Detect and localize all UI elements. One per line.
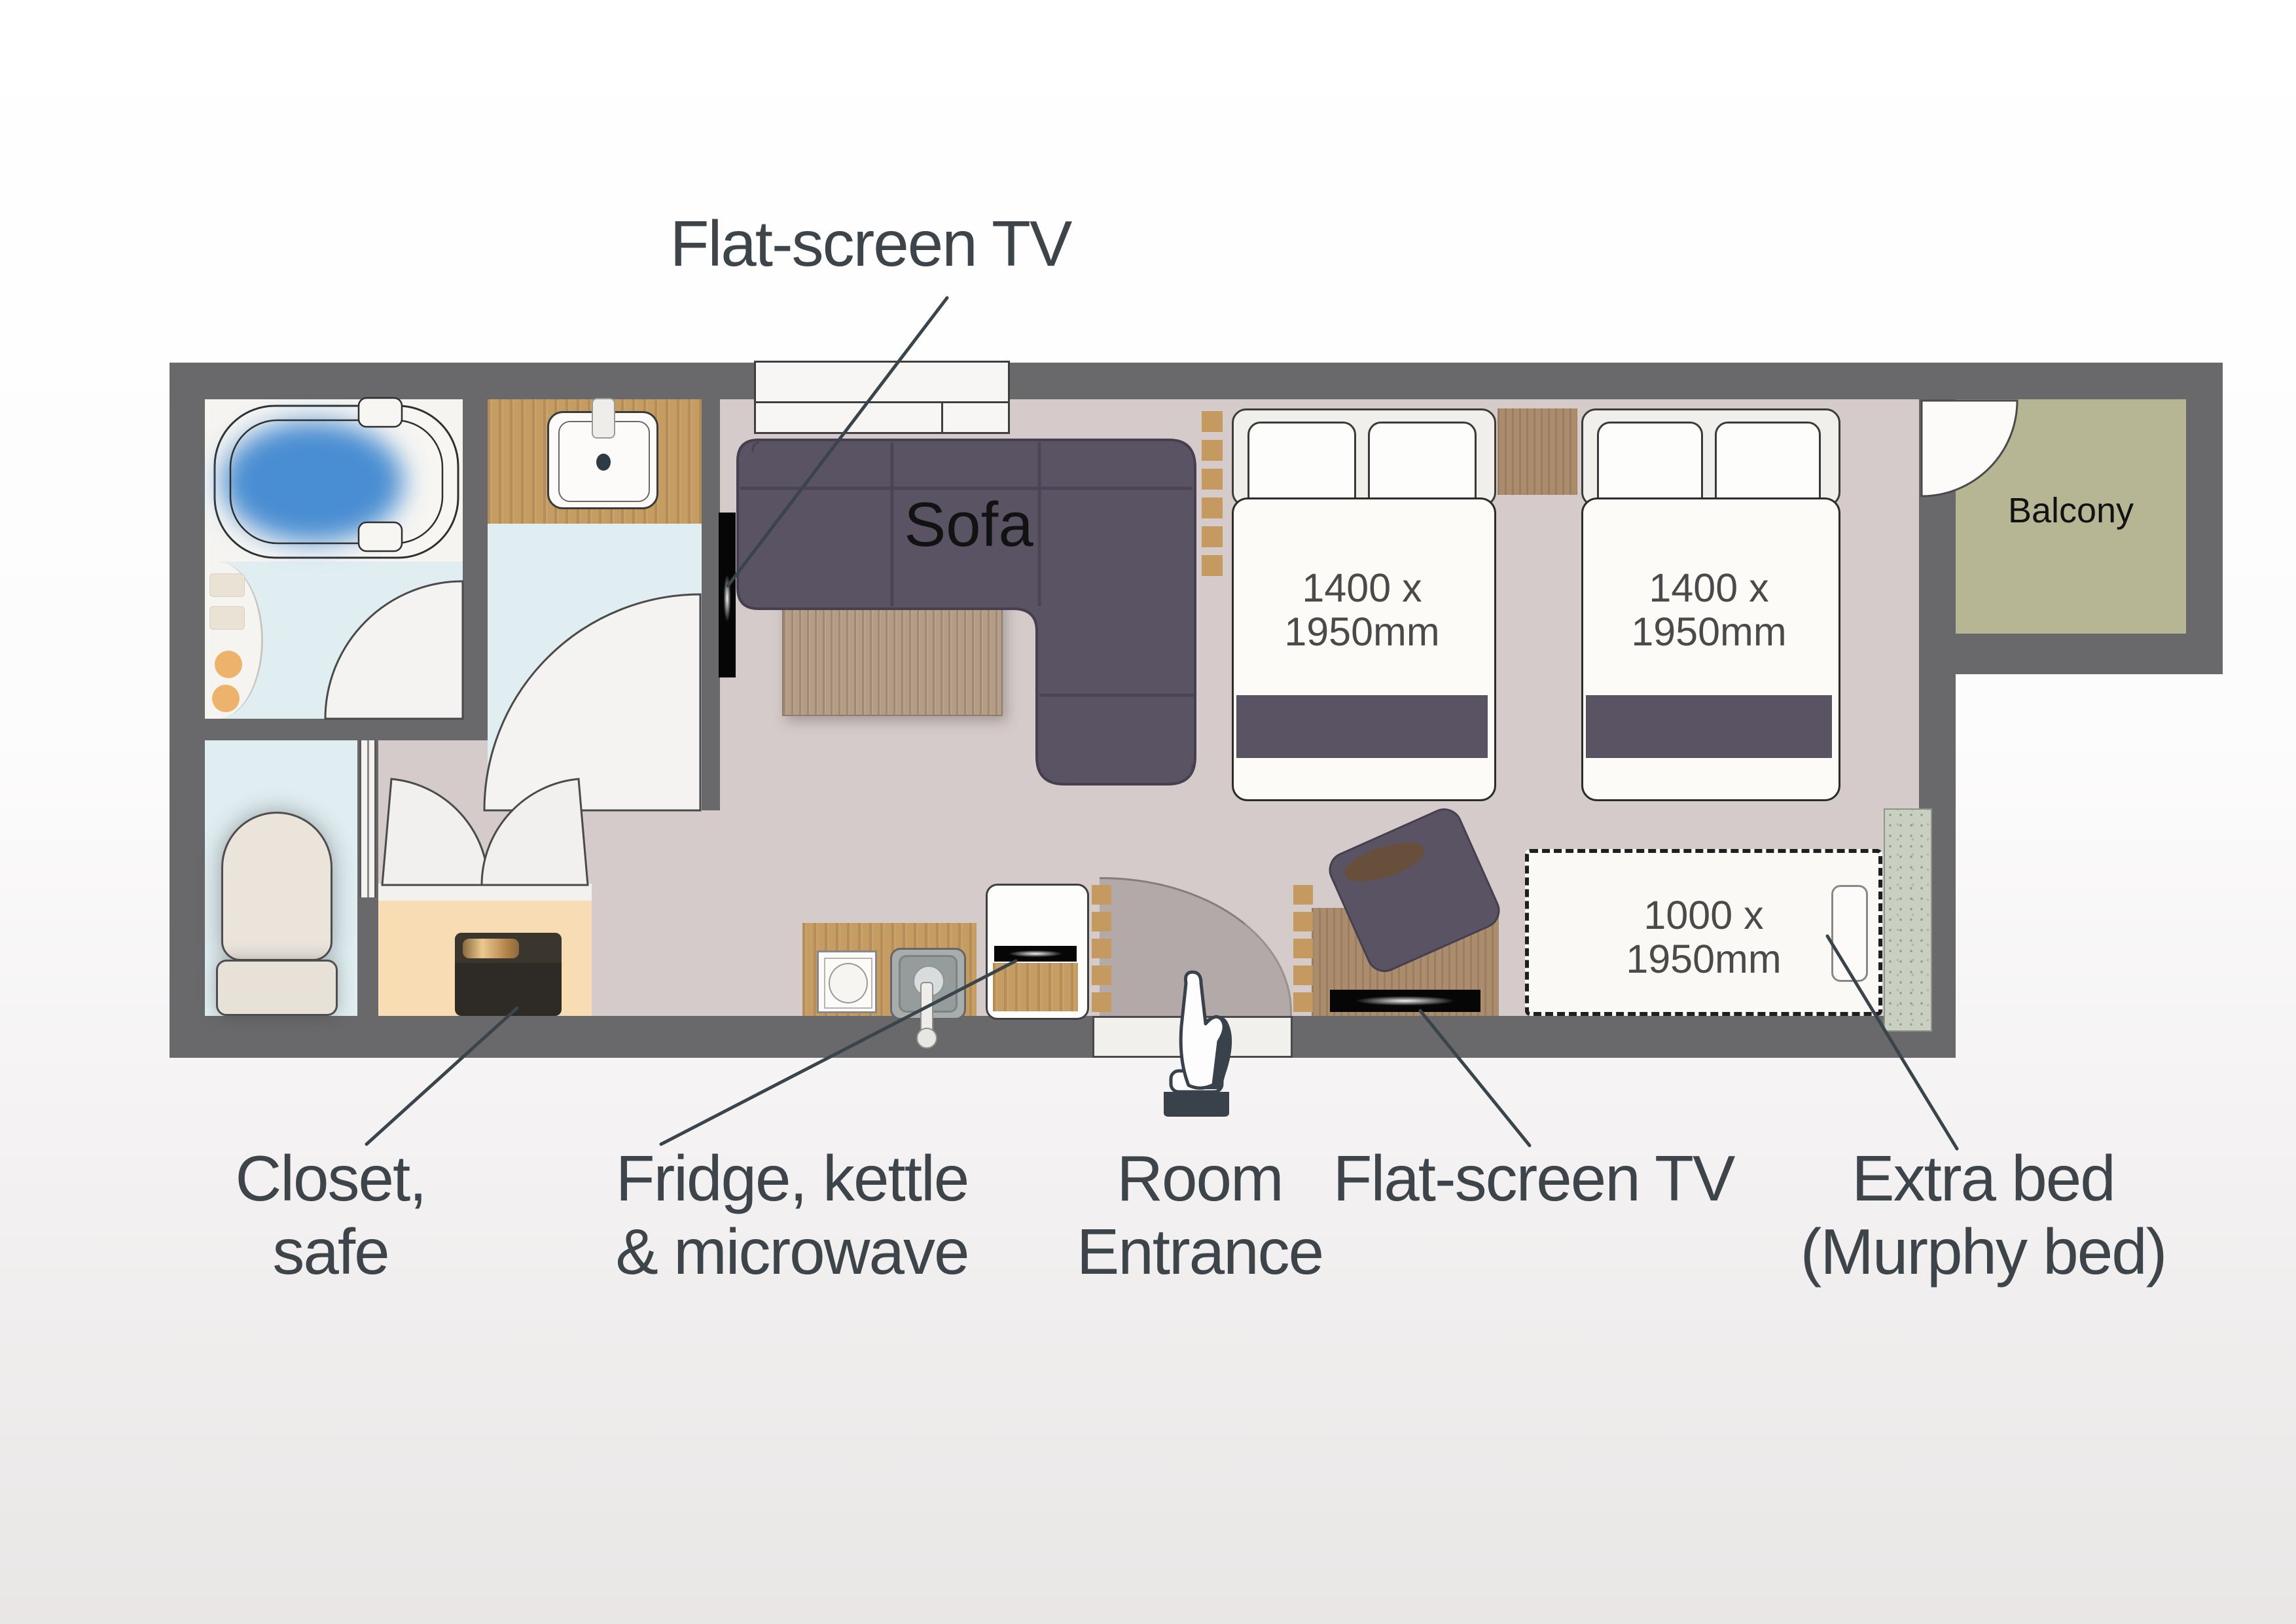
label-fridge-line1: Fridge, kettle (616, 1142, 969, 1215)
wall-console-shelf (754, 361, 1010, 434)
label-tv-top: Flat-screen TV (670, 207, 1071, 280)
murphy-bed-pillow (1831, 885, 1868, 982)
label-fridge-line2: & microwave (616, 1215, 969, 1288)
label-entrance-line2: Entrance (1077, 1215, 1323, 1288)
sofa-label-text: Sofa (904, 490, 1033, 560)
floor-plan-canvas: Sofa Balcony 1400 x 1950mm 1400 x 1950mm… (0, 0, 2296, 1624)
entrance-door-mat (1092, 1016, 1293, 1058)
vanity-faucet (592, 398, 615, 439)
wall-vanity-east (702, 399, 720, 810)
bed2-dim-line1: 1400 x (1631, 566, 1786, 610)
vanity-drain (596, 454, 611, 471)
wall-tub-vanity (463, 399, 488, 719)
kettle (829, 963, 868, 1003)
bed2-duvet-band (1586, 695, 1832, 758)
label-tv-top-text: Flat-screen TV (670, 208, 1071, 280)
murphy-dim-line1: 1000 x (1626, 893, 1781, 937)
label-entrance-line1: Room (1077, 1142, 1323, 1215)
wall-bottom-east (1293, 1016, 1956, 1058)
wall-balcony-right (2186, 363, 2223, 674)
kitchen-faucet-stem (920, 982, 933, 1033)
wall-top (170, 363, 2223, 399)
bed1-duvet-band (1236, 695, 1488, 758)
mini-fridge (986, 884, 1089, 1020)
murphy-dim-line2: 1950mm (1626, 937, 1781, 981)
bath-soap-2 (212, 685, 240, 712)
bath-amenity-1 (209, 573, 245, 597)
safe (455, 933, 562, 1016)
bath-soap-1 (215, 651, 242, 678)
label-closet-line2: safe (235, 1215, 425, 1288)
label-room-entrance: Room Entrance (1077, 1142, 1323, 1288)
safe-handle (463, 939, 519, 958)
label-fridge-kettle-microwave: Fridge, kettle & microwave (616, 1142, 969, 1288)
flat-screen-tv-desk (1330, 990, 1480, 1012)
bed1-dimensions: 1400 x 1950mm (1284, 566, 1439, 654)
kitchen-faucet-knob (916, 1028, 937, 1049)
label-closet-line1: Closet, (235, 1142, 425, 1215)
balcony-label: Balcony (2008, 490, 2134, 531)
bed2-dimensions: 1400 x 1950mm (1631, 566, 1786, 654)
entrance-slats-left (1092, 885, 1111, 1016)
coffee-table (782, 575, 1003, 716)
wall-bottom-west (170, 1016, 1092, 1058)
toilet-bowl (221, 812, 332, 961)
sofa-label: Sofa (904, 489, 1033, 561)
fridge-front-panel (993, 963, 1078, 1011)
label-closet-safe: Closet, safe (235, 1142, 425, 1288)
nightstand (1498, 408, 1577, 495)
murphy-bed-cabinet (1884, 808, 1932, 1032)
murphy-bed-dimensions: 1000 x 1950mm (1626, 893, 1781, 981)
wall-wet-toilet (205, 719, 488, 740)
toilet-sliding-door (359, 740, 376, 897)
balcony-label-text: Balcony (2008, 491, 2134, 530)
wood-slat-divider (1202, 411, 1223, 577)
wall-balcony-bottom (1919, 634, 2223, 674)
vanity-room-floor (488, 524, 702, 810)
label-extra-bed: Extra bed (Murphy bed) (1801, 1142, 2166, 1288)
wall-left (170, 363, 205, 1058)
label-tv-bottom: Flat-screen TV (1333, 1142, 1734, 1215)
fridge-handle-bar (994, 946, 1077, 962)
bathtub-room-floor (205, 399, 463, 562)
label-tv-bottom-text: Flat-screen TV (1333, 1142, 1734, 1214)
console-shelf-divider (756, 401, 1008, 403)
console-shelf-seam (941, 403, 943, 434)
closet-door-track (378, 884, 592, 901)
bath-amenity-2 (209, 606, 245, 630)
bed1-dim-line2: 1950mm (1284, 610, 1439, 654)
kettle-tray (817, 950, 877, 1013)
toilet-tank (216, 960, 338, 1016)
bed1-dim-line1: 1400 x (1284, 566, 1439, 610)
entrance-slats-right (1293, 885, 1313, 1016)
label-extra-line2: (Murphy bed) (1801, 1215, 2166, 1288)
bed2-dim-line2: 1950mm (1631, 610, 1786, 654)
label-extra-line1: Extra bed (1801, 1142, 2166, 1215)
flat-screen-tv-living (719, 513, 736, 677)
